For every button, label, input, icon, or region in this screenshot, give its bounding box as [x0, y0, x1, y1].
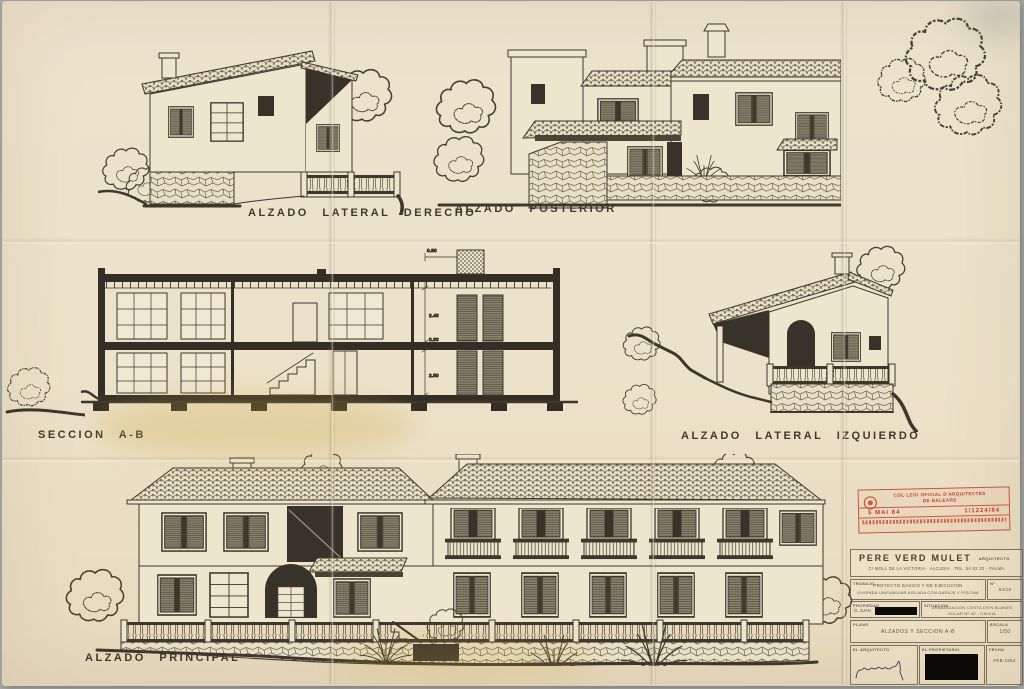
arched-opening — [787, 320, 815, 366]
balcony-unit — [581, 508, 637, 559]
stamp-registry-row: 5 MAI 84 1/1224/84 — [859, 505, 1009, 519]
shuttered-door — [522, 573, 558, 617]
footing — [171, 402, 187, 411]
bush-icon — [434, 137, 484, 182]
shuttered-window — [796, 113, 829, 142]
blueprint-sheet: 0.90 — [3, 2, 1019, 685]
mid-tile-band — [309, 558, 407, 572]
terrain-slope — [629, 335, 705, 378]
architect-title: ARQUITECTO — [979, 556, 1010, 561]
fecha-label: FECHA — [989, 647, 1004, 652]
propiedad-box: PROPIEDAD D. JUAN — [850, 601, 920, 618]
edge-vegetation — [3, 360, 85, 424]
escala-box: ESCALA 1/50 — [987, 620, 1023, 643]
label-alzado-principal: ALZADO PRINCIPAL — [85, 652, 240, 664]
redacted-owner-name — [875, 607, 917, 615]
shuttered-window — [224, 513, 268, 551]
drawing-alzado-lateral-izquierdo — [621, 234, 918, 432]
stair-void — [413, 644, 459, 661]
architect-name: PERE VERD MULET — [859, 553, 972, 563]
porch-post — [717, 326, 723, 382]
escala-label: ESCALA — [990, 622, 1008, 627]
bush-icon — [103, 148, 149, 189]
terrace-balustrade — [123, 625, 391, 639]
shuttered-door — [726, 573, 762, 617]
arquitecto-label: EL ARQUITECTO — [853, 647, 889, 652]
floor-slab — [98, 342, 560, 350]
drawing-alzado-posterior — [431, 14, 841, 214]
numero-label: Nº — [990, 581, 995, 586]
college-visa-stamp: COL·LEGI OFICIAL D'ARQUITECTES DE BALEAR… — [858, 486, 1011, 533]
dim-value: 0.90 — [427, 248, 437, 253]
shuttered-window — [334, 579, 370, 617]
main-roof — [667, 60, 841, 77]
balcony-unit — [649, 508, 705, 559]
right-wall — [553, 274, 560, 402]
label-alzado-lateral-izquierdo: ALZADO LATERAL IZQUIERDO — [681, 430, 920, 442]
propietario-label: EL PROPIETARIO — [922, 647, 960, 652]
architect-box: PERE VERD MULET ARQUITECTO C/ MOLL DE LA… — [850, 549, 1023, 577]
interior-door — [293, 303, 317, 342]
trabajo-line2: VIVIENDA UNIFAMILIAR AISLADA CON GARAJE … — [851, 590, 985, 596]
bay-roof — [777, 139, 837, 150]
entrance-door — [278, 587, 305, 618]
roof-right — [429, 464, 821, 500]
bush-icon — [436, 80, 495, 133]
chimney — [835, 256, 849, 274]
left-wall — [98, 274, 105, 402]
column — [411, 350, 414, 395]
fecha-box: FECHA FEB-1984 — [986, 645, 1023, 685]
column — [231, 282, 234, 342]
french-door — [210, 573, 248, 617]
footing — [547, 402, 563, 411]
stone-base — [150, 172, 234, 204]
footing — [411, 402, 427, 411]
drawing-alzado-principal — [61, 454, 853, 666]
trabajo-line1: PROYECTO BASICO Y DE EJECUCION — [851, 583, 985, 590]
stamp-registry-number: 1/1224/84 — [964, 508, 1000, 515]
cornice — [508, 50, 586, 57]
chimney — [708, 31, 725, 57]
bay-window — [784, 151, 830, 176]
situacion-box: SITUACION URBANIZACION COSTA D'EN BLANES… — [921, 601, 1023, 618]
numero-value: 84/18 — [988, 587, 1022, 594]
dark-door — [667, 142, 682, 178]
roof-left — [131, 468, 433, 500]
balcony-unit — [513, 508, 569, 559]
column — [411, 282, 414, 342]
shuttered-door — [658, 573, 694, 617]
stairs — [270, 360, 315, 395]
chimney — [162, 56, 176, 78]
stone-base — [607, 176, 841, 200]
roof-slab — [98, 274, 560, 282]
dark-window — [531, 84, 545, 104]
dim-line — [425, 253, 457, 261]
stone-buttress — [529, 142, 607, 208]
shuttered-window — [316, 125, 339, 152]
terrain-line — [7, 410, 85, 415]
footing — [331, 402, 347, 411]
shuttered-window — [780, 511, 816, 545]
bush-icon — [935, 75, 1001, 135]
trabajo-box: TRABAJO PROYECTO BASICO Y DE EJECUCION V… — [850, 579, 986, 600]
balcony-unit — [445, 508, 501, 559]
terrace-balustrade — [423, 625, 807, 639]
principal-linework — [66, 454, 851, 666]
shuttered-door — [454, 573, 490, 617]
footing — [251, 402, 267, 411]
numero-box: Nº 84/18 — [987, 579, 1023, 600]
dark-window — [258, 96, 274, 116]
plano-value: ALZADOS Y SECCION A-B — [851, 629, 985, 637]
shuttered-window — [628, 147, 663, 177]
lateral-derecho-linework — [98, 51, 402, 215]
plano-box: PLANO ALZADOS Y SECCION A-B — [850, 620, 986, 643]
propietario-signature-box: EL PROPIETARIO — [919, 645, 985, 685]
bush-icon — [66, 570, 123, 621]
escala-value: 1/50 — [988, 629, 1022, 637]
dim-value: 2.40 — [429, 313, 439, 318]
arquitecto-signature-box: EL ARQUITECTO — [850, 645, 918, 685]
shuttered-window — [736, 93, 772, 125]
footing — [93, 402, 109, 411]
shuttered-window — [162, 513, 206, 551]
shuttered-door — [590, 573, 626, 617]
dark-window — [693, 94, 709, 120]
bush-icon — [623, 384, 656, 414]
stamp-microtext — [862, 518, 1006, 525]
terrain-drop — [893, 394, 917, 432]
french-window — [211, 103, 243, 141]
lateral-izquierdo-linework — [623, 246, 917, 432]
column — [231, 350, 234, 395]
shuttered-window — [158, 575, 196, 615]
footing — [491, 402, 507, 411]
architect-address: C/ MOLL DE LA VICTORIA · ALCUDIA · TEL. … — [851, 566, 1022, 571]
dim-value: 0.30 — [429, 337, 439, 342]
dimension-stack: 2.40 0.30 2.50 — [422, 282, 439, 397]
corner-vegetation — [871, 8, 1016, 148]
seccion-linework: 0.90 — [81, 248, 578, 411]
upper-windows — [117, 293, 503, 342]
label-alzado-lateral-derecho: ALZADO LATERAL DERECHO — [248, 207, 476, 219]
shuttered-window — [169, 107, 194, 137]
shuttered-window — [832, 333, 861, 362]
situacion-line2: SOLAR Nº 42 · CALVIA — [922, 611, 1022, 617]
drawing-alzado-lateral-derecho — [98, 20, 408, 215]
posterior-linework — [434, 24, 841, 208]
shuttered-window — [358, 513, 402, 551]
label-seccion-ab: SECCION A-B — [38, 429, 146, 441]
hatched-chimney-block — [457, 250, 484, 274]
balcony-unit — [717, 508, 773, 559]
redacted-owner-signature — [925, 654, 978, 680]
bush-icon — [906, 19, 985, 90]
stamp-date: 5 MAI 84 — [868, 510, 900, 517]
awning-shadow — [535, 135, 681, 141]
dim-value: 2.50 — [429, 373, 439, 378]
plano-label: PLANO — [853, 622, 869, 627]
stamp-organization: COL·LEGI OFICIAL D'ARQUITECTES DE BALEAR… — [881, 491, 999, 505]
stone-base — [771, 384, 893, 412]
architect-signature — [853, 656, 913, 682]
drawing-seccion-ab: 0.90 — [81, 245, 578, 423]
title-block: PERE VERD MULET ARQUITECTO C/ MOLL DE LA… — [848, 547, 1024, 688]
mid-roof-band — [581, 71, 671, 86]
propiedad-value: D. JUAN — [854, 608, 871, 613]
dark-window — [869, 336, 881, 350]
joist-ticks — [105, 282, 551, 288]
terrain-line — [705, 378, 771, 402]
bush-icon — [7, 368, 49, 406]
fecha-value: FEB-1984 — [987, 658, 1022, 665]
label-alzado-posterior: ALZADO POSTERIOR — [455, 203, 617, 215]
